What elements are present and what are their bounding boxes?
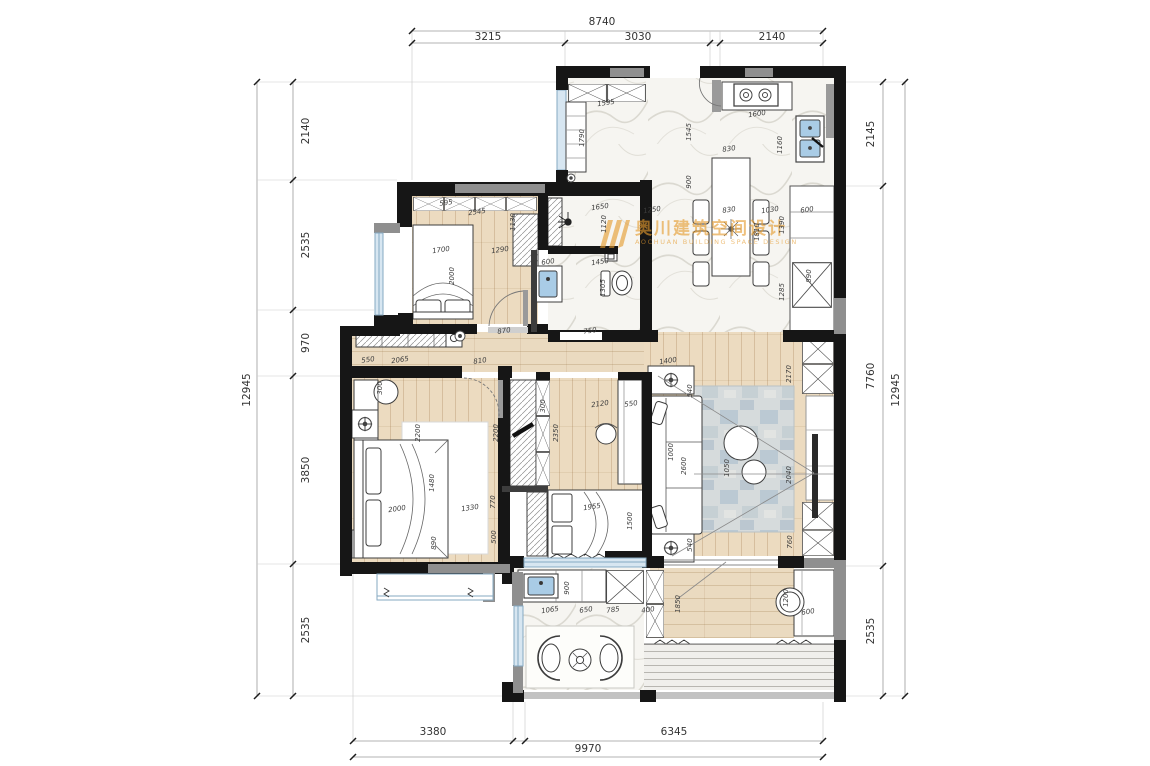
tv-icon	[812, 434, 818, 518]
closet-furniture	[510, 380, 550, 556]
floorplan-drawing	[0, 0, 1150, 766]
bedroom2-window	[375, 233, 383, 315]
bedroom3-window	[524, 558, 646, 567]
plant-icon	[721, 219, 741, 239]
master-door-leaf	[498, 380, 503, 418]
bedroom2-door-leaf	[523, 290, 528, 326]
master-bay-window	[377, 574, 493, 600]
balcony-window	[514, 606, 523, 666]
floorplan-canvas: 奥川建筑空间设计 AOCHUAN BUILDING SPACE DESIGN 8…	[0, 0, 1150, 766]
entry-door-leaf	[712, 80, 721, 112]
toilet-icon	[601, 271, 632, 296]
laundry-balcony-deck	[644, 644, 834, 690]
rear-room-floor	[650, 568, 794, 638]
